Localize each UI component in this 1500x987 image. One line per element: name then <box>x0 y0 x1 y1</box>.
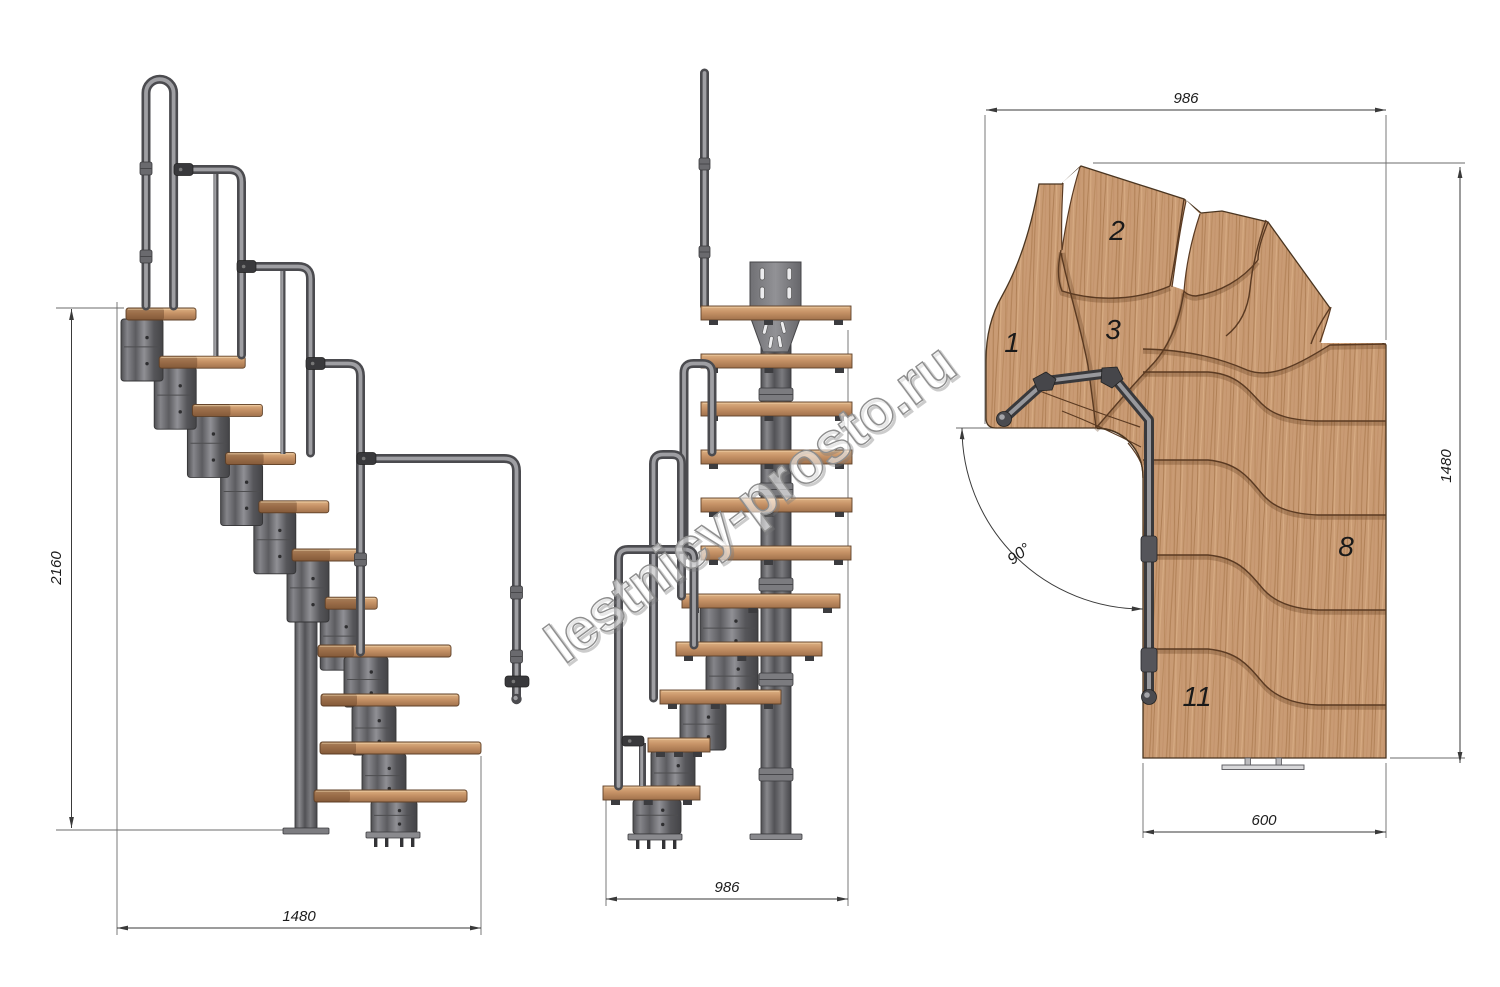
svg-text:1480: 1480 <box>1438 449 1455 483</box>
svg-text:986: 986 <box>714 879 740 896</box>
svg-text:1: 1 <box>1004 327 1020 358</box>
svg-text:2: 2 <box>1108 215 1125 246</box>
svg-text:8: 8 <box>1338 531 1354 562</box>
svg-text:3: 3 <box>1105 314 1121 345</box>
svg-text:600: 600 <box>1251 812 1277 829</box>
svg-text:1480: 1480 <box>282 908 316 925</box>
svg-text:2160: 2160 <box>48 551 65 586</box>
svg-text:11: 11 <box>1182 681 1211 712</box>
svg-text:986: 986 <box>1173 90 1199 107</box>
